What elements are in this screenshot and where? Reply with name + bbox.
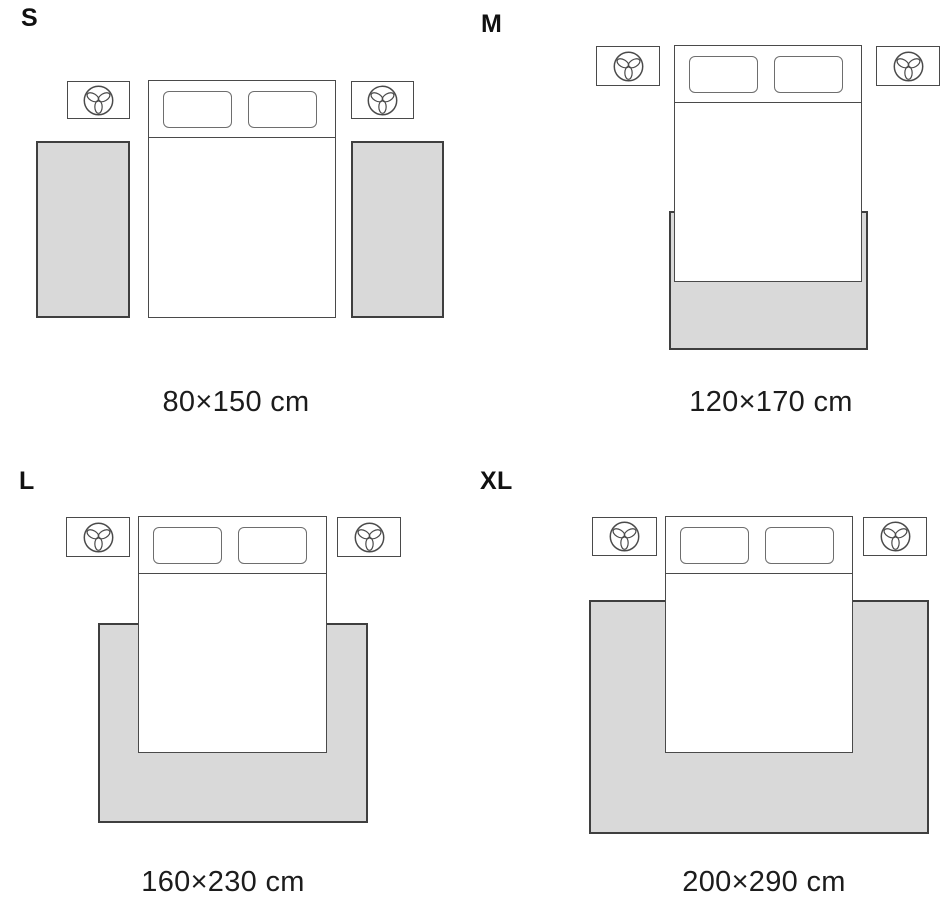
bed-top-view <box>148 80 336 318</box>
plant-icon <box>892 50 925 83</box>
size-panel-m: M <box>475 0 950 450</box>
dimension-caption-l: 160×230 cm <box>113 868 333 897</box>
plant-icon <box>366 84 399 117</box>
nightstand-right <box>876 46 940 86</box>
nightstand-right <box>863 517 927 556</box>
size-label-m: M <box>481 12 502 37</box>
bed-top-view <box>138 516 327 753</box>
size-label-s: S <box>21 6 38 31</box>
nightstand-left <box>67 81 130 119</box>
dimension-caption-xl: 200×290 cm <box>654 868 874 897</box>
dimension-caption-m: 120×170 cm <box>661 388 881 417</box>
plant-icon <box>879 520 912 553</box>
nightstand-left <box>592 517 657 556</box>
plant-icon <box>82 84 115 117</box>
bed-headboard-divider <box>665 573 853 574</box>
pillow <box>680 527 749 564</box>
pillow <box>238 527 307 564</box>
plant-icon <box>612 50 645 83</box>
rug-size-guide: S <box>0 0 950 900</box>
pillow <box>248 91 317 128</box>
pillow <box>765 527 834 564</box>
plant-icon <box>353 521 386 554</box>
rug-runner-left <box>36 141 130 318</box>
size-panel-s: S <box>0 0 475 450</box>
bed-top-view <box>665 516 853 753</box>
bed-top-view <box>674 45 862 282</box>
size-label-l: L <box>19 469 35 494</box>
nightstand-right <box>337 517 401 557</box>
pillow <box>689 56 758 93</box>
nightstand-left <box>596 46 660 86</box>
bed-headboard-divider <box>138 573 327 574</box>
dimension-caption-s: 80×150 cm <box>126 388 346 417</box>
size-panel-xl: XL <box>475 450 950 900</box>
pillow <box>163 91 232 128</box>
nightstand-left <box>66 517 130 557</box>
nightstand-right <box>351 81 414 119</box>
size-label-xl: XL <box>480 469 513 494</box>
pillow <box>774 56 843 93</box>
size-panel-l: L <box>0 450 475 900</box>
plant-icon <box>608 520 641 553</box>
pillow <box>153 527 222 564</box>
bed-headboard-divider <box>148 137 336 138</box>
plant-icon <box>82 521 115 554</box>
rug-runner-right <box>351 141 444 318</box>
bed-headboard-divider <box>674 102 862 103</box>
